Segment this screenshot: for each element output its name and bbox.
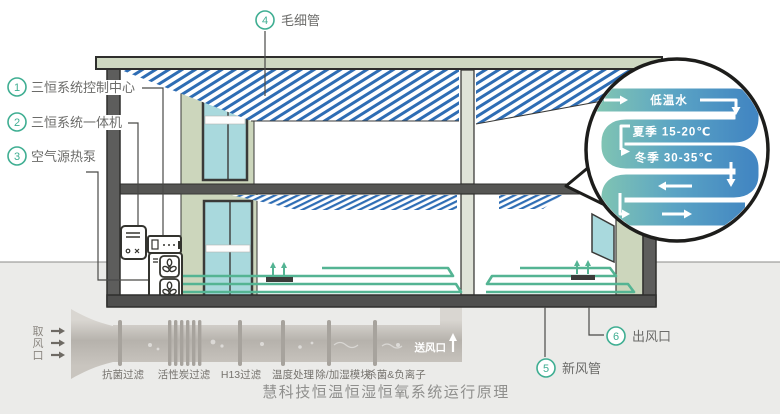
ground-divider-wall — [461, 194, 474, 295]
mid-floor-slab — [120, 184, 643, 194]
intake-label-char1: 取 — [33, 325, 44, 338]
callout-2-label: 三恒系统一体机 — [31, 115, 122, 130]
callout-1-number: 1 — [14, 82, 20, 94]
diagram-title: 慧科技恒温恒湿恒氧系统运行原理 — [262, 384, 510, 401]
duct-tube — [113, 325, 462, 362]
hvac-principle-diagram: 取 风 口 送风口 抗菌过滤 活性炭过滤 H13过滤 温度处理 除/加湿模块 杀… — [0, 0, 780, 414]
callout-6-number: 6 — [613, 331, 619, 343]
pipe-label-low-temp-water: 低温水 — [649, 93, 688, 107]
roof-slab — [96, 57, 662, 69]
outlet-label: 送风口 — [414, 341, 447, 354]
callout-1-label: 三恒系统控制中心 — [31, 80, 135, 95]
callout-6-label: 出风口 — [632, 329, 671, 344]
stage-carbon: 活性炭过滤 — [158, 368, 211, 381]
callout-3-label: 空气源热泵 — [31, 149, 96, 164]
callout-4: 4 毛细管 — [256, 11, 320, 29]
callout-5-number: 5 — [543, 363, 549, 375]
left-exterior-wall — [107, 66, 120, 306]
upper-divider-wall — [461, 70, 474, 184]
callout-1: 1 三恒系统控制中心 — [8, 78, 142, 96]
stage-temperature: 温度处理 — [272, 368, 314, 381]
pipe-label-winter-temp: 冬季 30-35℃ — [635, 151, 714, 165]
ground-window — [204, 201, 252, 296]
pipe-label-summer-temp: 夏季 15-20℃ — [633, 125, 712, 139]
callout-5-label: 新风管 — [562, 361, 601, 376]
intake-label-char2: 风 — [33, 337, 44, 350]
foundation-slab — [107, 295, 656, 307]
fan-icon — [160, 256, 179, 277]
intake-label-char3: 口 — [33, 350, 44, 362]
callout-3: 3 空气源热泵 — [8, 147, 102, 165]
stage-h13: H13过滤 — [221, 368, 262, 381]
callout-3-number: 3 — [14, 151, 20, 163]
callout-6: 6 出风口 — [607, 327, 671, 345]
control-panel — [148, 236, 181, 253]
callout-5: 5 新风管 — [537, 359, 601, 377]
stage-ion: 杀菌&负离子 — [366, 368, 426, 381]
callout-2-number: 2 — [14, 117, 20, 129]
stage-humidity: 除/加湿模块 — [315, 368, 371, 381]
callout-4-number: 4 — [262, 15, 268, 27]
diagram-canvas: 取 风 口 送风口 抗菌过滤 活性炭过滤 H13过滤 温度处理 除/加湿模块 杀… — [0, 0, 780, 414]
heat-recovery-unit — [121, 226, 146, 259]
callout-4-label: 毛细管 — [281, 13, 320, 28]
stage-antibacterial: 抗菌过滤 — [102, 368, 144, 381]
